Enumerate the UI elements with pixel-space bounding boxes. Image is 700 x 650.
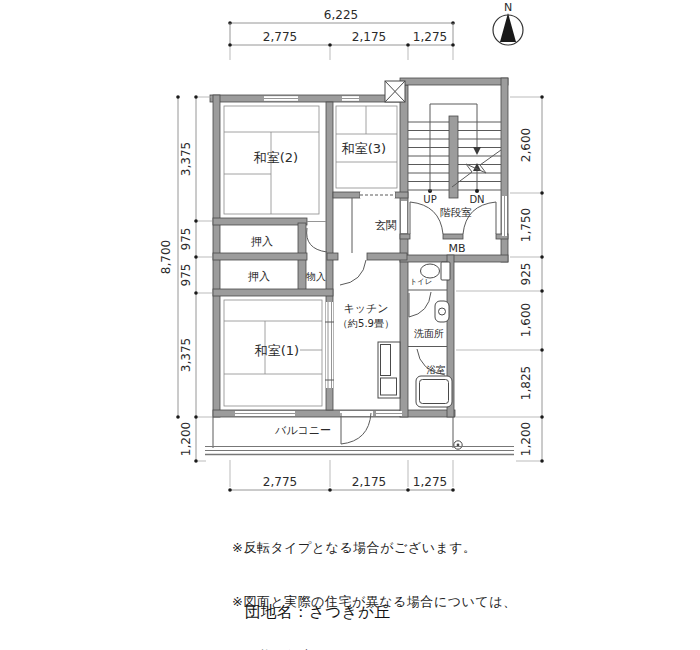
wall: [213, 253, 307, 260]
room-label-closet-lower: 押入: [248, 270, 270, 283]
north-compass: N: [493, 1, 523, 45]
dim-left-4: 3,375: [179, 338, 193, 372]
dim-right-6: 1,200: [519, 422, 533, 456]
wall: [400, 234, 410, 239]
door-arc: [410, 202, 443, 234]
dn-start-dot: [475, 189, 479, 193]
kitchen-sink: [381, 378, 397, 395]
dim-bottom-1: 2,775: [263, 475, 297, 489]
toilet-fixture: [421, 264, 440, 278]
sliding-door-opening: [326, 302, 333, 388]
door-arc: [409, 292, 431, 317]
room-label-bathroom: 浴室: [427, 364, 446, 375]
room-label-storage: 物入: [306, 271, 326, 282]
dim-left-total: 8,700: [159, 240, 173, 274]
dim-right-4: 1,600: [519, 303, 533, 337]
balcony-rail: [205, 417, 514, 455]
room-label-washitsu2: 和室(2): [253, 150, 298, 165]
wall: [210, 95, 407, 102]
drain-cap-center: [457, 444, 460, 447]
wall: [213, 289, 333, 296]
down-arrowhead: [473, 147, 481, 155]
front-door-opening: [401, 201, 407, 233]
room-label-kitchen-size: （約5.9畳）: [338, 318, 394, 329]
label-up: UP: [423, 194, 436, 205]
dim-top-1: 2,775: [263, 30, 297, 44]
dim-left-2: 975: [179, 228, 193, 251]
door-arc: [341, 413, 371, 444]
room-label-washitsu1: 和室(1): [254, 343, 299, 358]
door-arc: [340, 260, 366, 285]
door-arc: [307, 228, 327, 252]
dim-right-2: 1,750: [519, 208, 533, 242]
room-label-washroom: 洗面所: [414, 328, 444, 339]
floor-plan-page: 和室(2) 和室(3) 和室(1) 押入 押入 物入 玄関 キッチン （約5.9…: [0, 0, 700, 650]
dim-left-1: 3,375: [179, 142, 193, 176]
wall: [367, 253, 407, 260]
compass-north-label: N: [504, 1, 512, 14]
label-meter-box: MB: [448, 242, 465, 255]
room-label-balcony: バルコニー: [274, 424, 331, 437]
wall: [333, 192, 360, 198]
room-label-stair-room: 階段室: [440, 206, 472, 218]
title-line-danchi: 団地名：さつきが丘: [245, 602, 390, 622]
title-block: 団地名：さつきが丘 型 式：3K タイプ：3C 図面No：30230: [245, 562, 390, 650]
note-line: ※反転タイプとなる場合がございます。: [232, 539, 516, 557]
dim-bottom-3: 1,275: [413, 475, 447, 489]
label-dn: DN: [469, 194, 484, 205]
wall: [400, 85, 408, 417]
staircase: [408, 104, 501, 198]
room-label-kitchen: キッチン: [343, 302, 388, 315]
room-label-toilet: トイレ: [409, 277, 432, 286]
wall: [443, 234, 463, 239]
dim-bottom-2: 2,175: [352, 475, 386, 489]
bathtub-inner: [420, 380, 449, 404]
dim-left-3: 975: [179, 264, 193, 287]
kitchen-drainboard: [381, 345, 391, 376]
wall: [213, 218, 307, 225]
toilet-tank: [441, 262, 450, 280]
dim-top-total: 6,225: [324, 8, 358, 22]
sink-bowl: [439, 308, 446, 315]
dim-top-2: 2,175: [352, 30, 386, 44]
wall: [395, 192, 408, 198]
dim-right-5: 1,825: [519, 366, 533, 400]
dim-right-3: 925: [519, 263, 533, 286]
dim-right-1: 2,600: [519, 128, 533, 162]
wall: [327, 253, 338, 260]
wall: [400, 78, 508, 85]
dim-left-5: 1,200: [179, 422, 193, 456]
room-label-closet-upper: 押入: [251, 235, 273, 248]
room-label-washitsu3: 和室(3): [341, 141, 386, 156]
dim-top-3: 1,275: [413, 30, 447, 44]
room-label-entrance: 玄関: [375, 219, 397, 232]
balcony-door-opening: [340, 411, 373, 416]
